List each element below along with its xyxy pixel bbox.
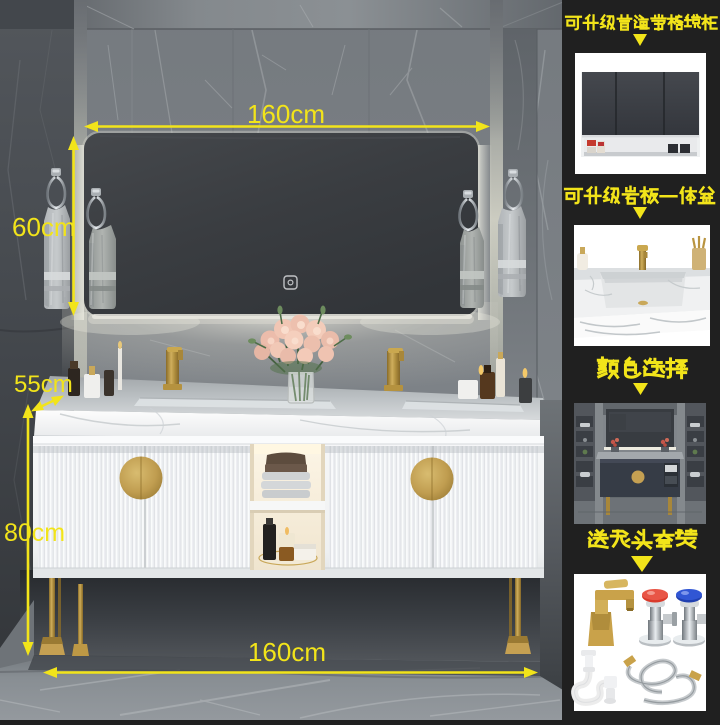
svg-text:55cm: 55cm — [14, 371, 73, 398]
svg-text:60cm: 60cm — [12, 212, 76, 242]
svg-text:160cm: 160cm — [248, 637, 326, 667]
svg-text:80cm: 80cm — [4, 519, 65, 547]
svg-text:160cm: 160cm — [247, 99, 325, 129]
